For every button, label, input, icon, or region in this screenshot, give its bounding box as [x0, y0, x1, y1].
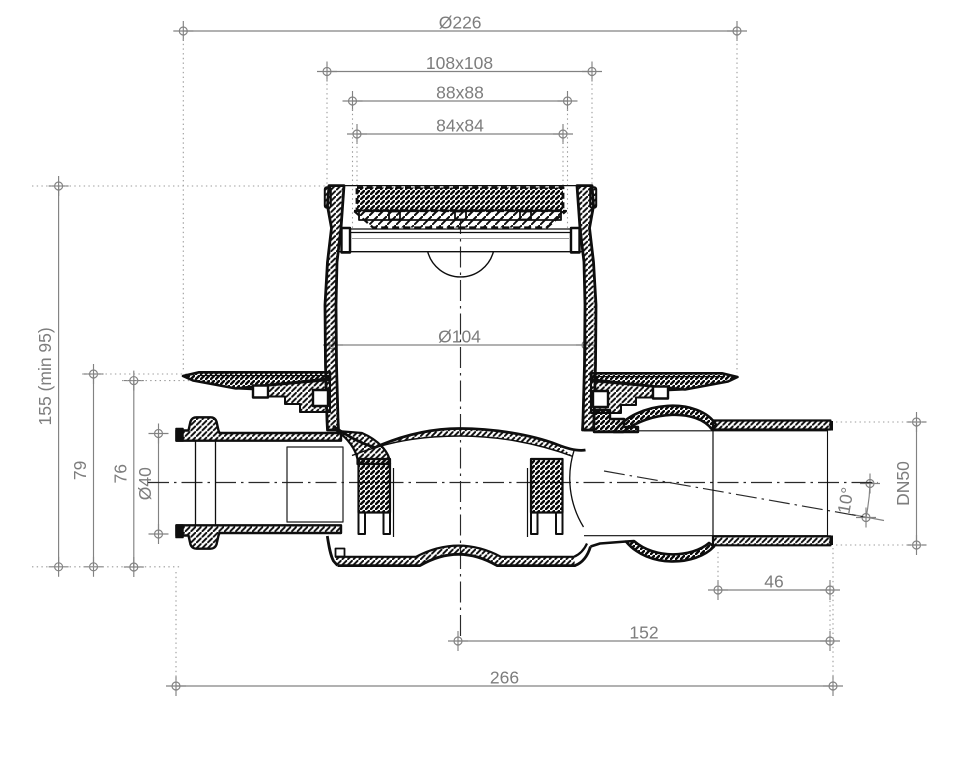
svg-text:152: 152 — [629, 623, 658, 643]
svg-text:Ø104: Ø104 — [438, 327, 481, 347]
svg-text:266: 266 — [490, 668, 519, 688]
svg-text:DN50: DN50 — [893, 461, 913, 506]
svg-text:Ø226: Ø226 — [439, 13, 482, 33]
svg-text:84x84: 84x84 — [436, 116, 484, 136]
svg-text:79: 79 — [70, 461, 90, 480]
svg-text:76: 76 — [110, 464, 130, 483]
svg-text:88x88: 88x88 — [436, 83, 484, 103]
svg-text:108x108: 108x108 — [426, 53, 493, 73]
svg-text:155 (min 95): 155 (min 95) — [35, 327, 55, 425]
svg-text:Ø40: Ø40 — [135, 467, 155, 500]
svg-text:46: 46 — [764, 572, 783, 592]
